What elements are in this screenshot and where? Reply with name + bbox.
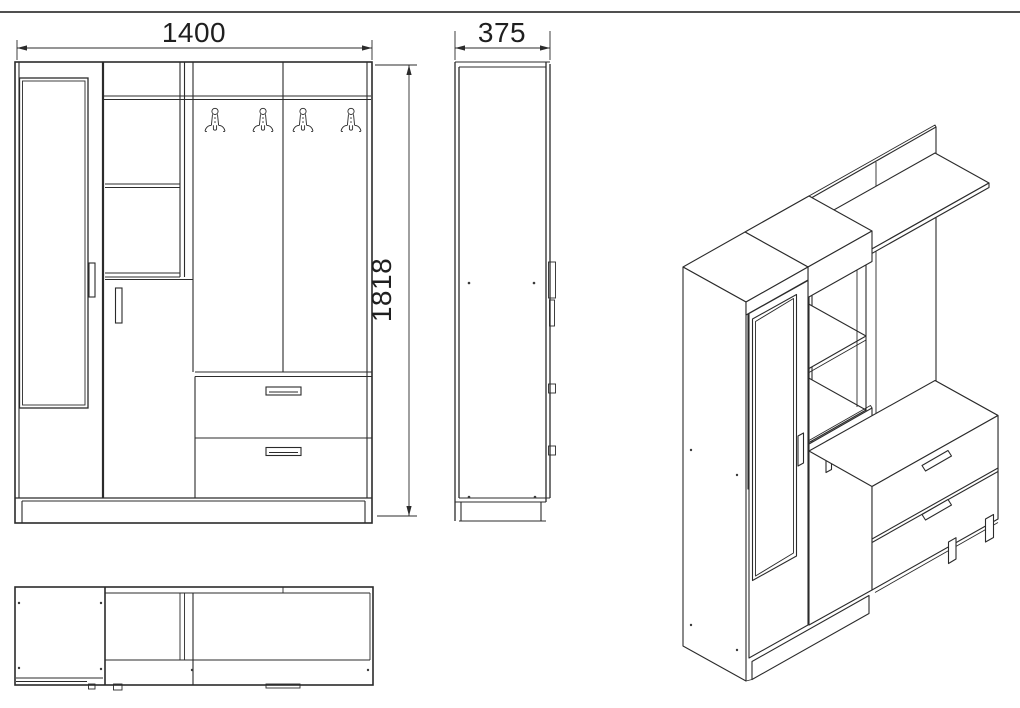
iso-leg [949,538,957,564]
dim-width-label: 1400 [162,17,226,48]
technical-drawing-page: 1400 1818 375 [0,0,1020,708]
drawer-unit [195,372,372,498]
dimension-height: 1818 [366,65,417,516]
side-view [455,62,556,521]
drawer-handle [266,448,301,456]
dim-depth-label: 375 [478,17,526,48]
plan-view [15,587,373,690]
isometric-view [683,125,998,681]
mirror-door [20,78,96,408]
iso-mirror-cabinet [683,232,808,681]
front-view [15,62,372,523]
iso-mirror-handle [798,433,804,466]
dim-height-label: 1818 [366,258,397,322]
dimension-depth: 375 [455,17,550,60]
middle-door-handle [116,288,123,323]
mirror-door-handle [89,263,95,297]
iso-leg [986,515,994,543]
dimension-width: 1400 [17,17,372,60]
top-shelf-line [104,96,371,100]
furniture-drawing: 1400 1818 375 [0,0,1020,708]
drawer-handle [266,387,301,395]
